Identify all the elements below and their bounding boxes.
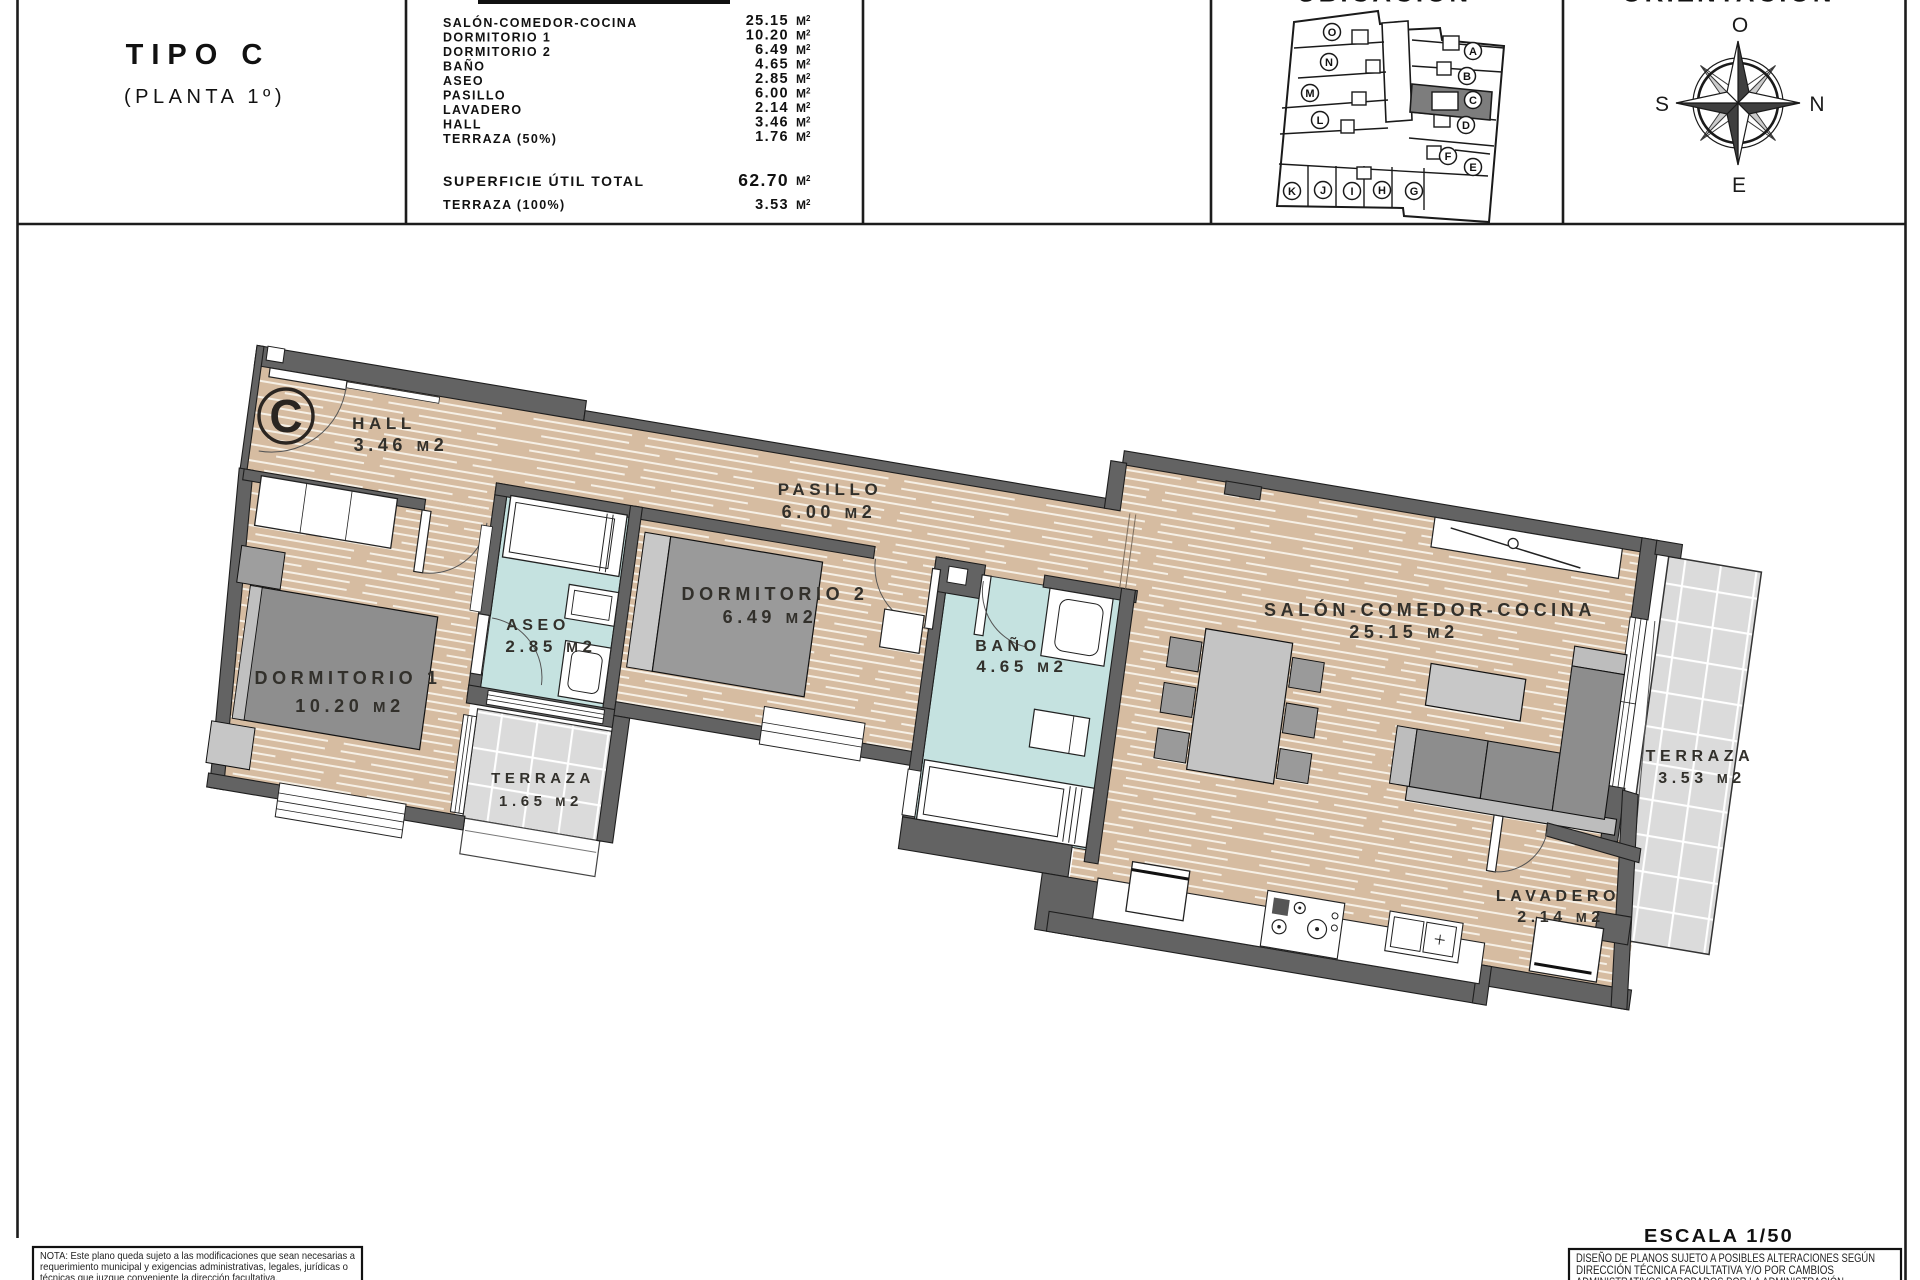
svg-text:HALL: HALL: [352, 414, 416, 433]
svg-text:TERRAZA (50%): TERRAZA (50%): [443, 132, 557, 146]
svg-text:D: D: [1462, 120, 1470, 132]
svg-text:G: G: [1410, 186, 1419, 198]
svg-text:M2: M2: [796, 87, 811, 101]
svg-text:TERRAZA: TERRAZA: [1646, 748, 1755, 765]
svg-text:E: E: [1469, 162, 1476, 174]
svg-text:M2: M2: [796, 174, 811, 188]
svg-text:H: H: [1378, 185, 1386, 197]
svg-text:M2: M2: [796, 58, 811, 72]
svg-text:DORMITORIO 2: DORMITORIO 2: [682, 584, 869, 604]
svg-text:ADMINISTRATIVOS APROBADOS POR: ADMINISTRATIVOS APROBADOS POR LA ADMINIS…: [1576, 1274, 1844, 1280]
svg-text:TIPO C: TIPO C: [126, 39, 271, 71]
svg-text:UBICACIÓN: UBICACIÓN: [1297, 0, 1471, 8]
svg-text:ORIENTACIÓN: ORIENTACIÓN: [1621, 0, 1834, 8]
svg-text:PASILLO: PASILLO: [778, 480, 883, 499]
svg-text:M2: M2: [796, 29, 811, 43]
svg-text:F: F: [1445, 151, 1452, 163]
svg-text:LAVADERO: LAVADERO: [1496, 888, 1620, 905]
svg-text:S: S: [1655, 93, 1669, 116]
svg-text:6.49 M2: 6.49 M2: [723, 607, 818, 627]
svg-text:M2: M2: [796, 116, 811, 130]
svg-text:BAÑO: BAÑO: [443, 59, 485, 74]
svg-text:M2: M2: [796, 72, 811, 86]
svg-text:BAÑO: BAÑO: [975, 635, 1041, 655]
svg-text:M: M: [1305, 88, 1314, 100]
svg-text:M2: M2: [796, 198, 811, 212]
svg-text:LAVADERO: LAVADERO: [443, 103, 523, 117]
svg-text:1.76: 1.76: [755, 129, 789, 145]
svg-text:1.65 M2: 1.65 M2: [499, 793, 583, 810]
svg-text:DORMITORIO 2: DORMITORIO 2: [443, 45, 551, 59]
svg-text:TERRAZA (100%): TERRAZA (100%): [443, 198, 566, 212]
svg-text:(PLANTA 1º): (PLANTA 1º): [124, 86, 286, 108]
svg-text:6.00 M2: 6.00 M2: [782, 502, 877, 522]
svg-text:N: N: [1325, 57, 1333, 69]
svg-text:4.65 M2: 4.65 M2: [976, 657, 1067, 676]
svg-text:2.85 M2: 2.85 M2: [505, 637, 596, 656]
svg-text:J: J: [1320, 185, 1326, 197]
svg-text:10.20 M2: 10.20 M2: [295, 696, 404, 716]
svg-text:PASILLO: PASILLO: [443, 89, 506, 103]
svg-text:E: E: [1732, 174, 1746, 197]
svg-text:62.70: 62.70: [738, 170, 789, 190]
svg-text:25.15 M2: 25.15 M2: [1349, 622, 1458, 642]
svg-text:B: B: [1463, 71, 1471, 83]
svg-text:ASEO: ASEO: [506, 617, 570, 634]
svg-text:3.46 M2: 3.46 M2: [354, 435, 449, 455]
svg-text:SUPERFICIE ÚTIL TOTAL: SUPERFICIE ÚTIL TOTAL: [443, 172, 645, 189]
svg-text:TERRAZA: TERRAZA: [491, 770, 595, 787]
svg-text:ESCALA 1/50: ESCALA 1/50: [1644, 1226, 1794, 1246]
svg-text:2.14 M2: 2.14 M2: [1517, 909, 1605, 926]
svg-text:M2: M2: [796, 101, 811, 115]
svg-text:L: L: [1317, 115, 1324, 127]
svg-text:M2: M2: [796, 130, 811, 144]
svg-text:DORMITORIO 1: DORMITORIO 1: [255, 668, 442, 688]
svg-text:O: O: [1328, 27, 1337, 39]
svg-text:HALL: HALL: [443, 118, 482, 132]
svg-text:3.53: 3.53: [755, 197, 789, 213]
svg-text:M2: M2: [796, 43, 811, 57]
svg-text:M2: M2: [796, 14, 811, 28]
svg-text:SALÓN-COMEDOR-COCINA: SALÓN-COMEDOR-COCINA: [443, 15, 638, 30]
svg-text:N: N: [1809, 93, 1824, 116]
svg-text:técnicas que juzgue convenient: técnicas que juzgue conveniente la direc…: [40, 1272, 278, 1280]
svg-text:C: C: [269, 390, 302, 442]
svg-text:I: I: [1350, 186, 1353, 198]
svg-text:A: A: [1469, 46, 1477, 58]
svg-text:K: K: [1288, 186, 1296, 198]
svg-text:SALÓN-COMEDOR-COCINA: SALÓN-COMEDOR-COCINA: [1264, 599, 1596, 620]
svg-text:ASEO: ASEO: [443, 74, 484, 88]
svg-text:C: C: [1469, 95, 1477, 107]
svg-text:3.53 M2: 3.53 M2: [1658, 770, 1746, 787]
svg-text:O: O: [1732, 14, 1748, 37]
svg-text:DORMITORIO 1: DORMITORIO 1: [443, 31, 551, 45]
